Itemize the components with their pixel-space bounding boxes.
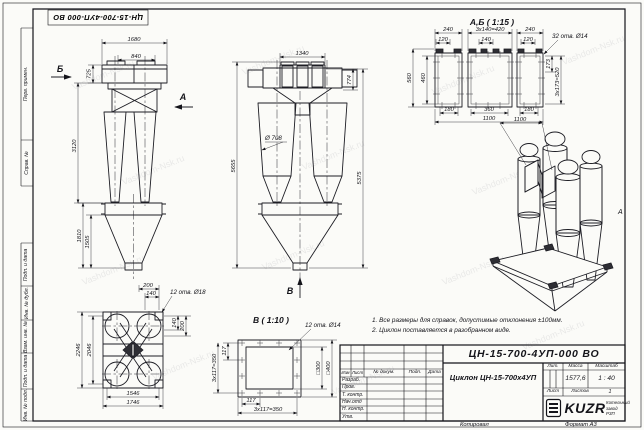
col-podp: Подп.: [404, 369, 426, 377]
company-logo-text: KUZR: [563, 397, 607, 418]
titleblock-designation: ЦН-15-700-4УП-000 ВО: [443, 345, 625, 363]
dim-774: 774: [347, 75, 353, 85]
dim-117l: 117: [222, 346, 228, 356]
margin-label-inv-podl: Инв. № подл.: [20, 389, 33, 421]
titleblock-product-title: Циклон ЦН-15-700х4УП: [444, 366, 542, 390]
dim-1680: 1680: [128, 37, 142, 43]
margin-label-perv-primen: Перв. примен.: [20, 28, 33, 140]
note-line-2: 2. Циклон поставляется в разобранном вид…: [372, 327, 622, 334]
dim-200t: 200: [142, 283, 153, 289]
mass-label: Масса: [563, 363, 588, 370]
view-side: 1680 840 725 3120 1810 1505 Б А: [45, 36, 230, 301]
row-razrab: Разраб.: [342, 378, 360, 384]
row-nachotd: Нач.отд: [342, 400, 362, 406]
format-label: Формат А3: [565, 422, 597, 429]
notes: 1. Все размеры для справок, допустимые о…: [372, 317, 622, 335]
dim-1810: 1810: [77, 229, 83, 243]
view-arrow-a: А: [179, 92, 187, 102]
row-prov: Пров.: [342, 385, 355, 391]
dim-140t: 140: [146, 291, 156, 297]
scale-value: 1 : 40: [588, 370, 625, 388]
lit-label: Лит.: [543, 363, 563, 370]
margin-label-podp-data-1: Подп. и дата: [20, 243, 33, 286]
dim-360: 360: [484, 107, 494, 113]
sheets-label: Листов: [565, 388, 595, 396]
margin-label-sprav-no: Справ. №: [20, 140, 33, 186]
dim-1546: 1546: [127, 391, 141, 397]
row-tkontr: Т. контр.: [342, 393, 364, 399]
dim-1505: 1505: [85, 235, 91, 249]
note-line-1: 1. Все размеры для справок, допустимые о…: [372, 317, 622, 324]
dim-350b: 3х117=350: [254, 407, 283, 413]
detail-v: В ( 1:10 ) 12 отв. Ø14 □300 □400 117 3х1…: [205, 300, 360, 425]
copied-label: Копировал: [460, 422, 489, 429]
dim-240r: 240: [524, 27, 535, 33]
zone-marker-a: А: [618, 209, 623, 217]
company-logo-icon: [546, 399, 561, 417]
dim-1340: 1340: [296, 51, 310, 57]
dim-180r: 180: [524, 107, 534, 113]
dim-840: 840: [131, 54, 141, 60]
view-front: 1340 774 5655 5375 Ø 708 В: [225, 36, 410, 311]
dim-5655: 5655: [231, 159, 237, 173]
row-utv: Утв.: [342, 415, 353, 421]
dim-180l: 180: [444, 107, 454, 113]
dia-708-label: Ø 708: [264, 135, 282, 142]
sheet-label: Лист: [543, 388, 563, 396]
dim-2246: 2246: [76, 343, 82, 358]
dim-1100-iso: 1100: [514, 117, 527, 123]
view-isometric: 1100: [480, 115, 635, 315]
designation-stamp: ЦН-15-700-4УП-000 ВО: [48, 10, 148, 25]
dim-120l: 120: [438, 37, 448, 43]
dim-1746: 1746: [127, 400, 141, 406]
col-data: Дата: [426, 369, 443, 377]
margin-label-inv-dubl: Инв. № дубл.: [20, 286, 33, 320]
dim-420: 3х140=420: [476, 27, 506, 33]
margin-label-podp-data-2: Подп. и дата: [20, 353, 33, 389]
scale-label: Масштаб: [588, 363, 625, 370]
dim-2046: 2046: [87, 343, 93, 358]
col-izm: Изм: [340, 369, 351, 377]
view-arrow-b: Б: [57, 64, 64, 74]
row-nkontr: Н. контр.: [342, 407, 365, 413]
sheets-value: 1: [600, 388, 620, 396]
dim-117b: 117: [246, 398, 256, 404]
dim-173: 173: [546, 58, 552, 68]
dim-300: □300: [316, 361, 322, 375]
view-arrow-v: В: [287, 286, 294, 296]
detail-v-title: В ( 1:10 ): [253, 315, 289, 325]
company-name: Котельный завод РЗП: [606, 400, 625, 418]
mass-value: 1577,6: [563, 370, 588, 388]
view-plan: 200 140 12 отв. Ø18 140 200 2246 2046 15…: [60, 280, 225, 425]
dim-560: 560: [407, 72, 413, 82]
holes-label-ab: 32 отв. Ø14: [552, 33, 588, 40]
company-name-line2: завод РЗП: [606, 406, 625, 417]
dim-5375: 5375: [357, 171, 363, 185]
dim-140: 140: [481, 37, 491, 43]
dim-725: 725: [87, 68, 93, 78]
col-list: Лист: [351, 369, 364, 377]
dim-520: 3х173=520: [555, 67, 561, 97]
dim-3120: 3120: [72, 139, 78, 153]
dim-240l: 240: [442, 27, 453, 33]
holes-label-v: 12 отв. Ø14: [305, 322, 341, 329]
drawing-sheet: Vashdom-Nsk.ru Vashdom-Nsk.ru Vashdom-Ns…: [0, 0, 644, 430]
detail-ab-title: А,Б ( 1:15 ): [469, 17, 514, 27]
holes-label-plan: 12 отв. Ø18: [170, 289, 206, 296]
dim-350l: 3х117=350: [212, 353, 218, 382]
col-doc: № докум.: [364, 369, 404, 377]
dim-140r: 140: [172, 317, 178, 327]
dim-400: □400: [326, 361, 332, 375]
dim-460: 460: [421, 72, 427, 82]
company-name-line1: Котельный: [606, 400, 625, 406]
dim-200r: 200: [180, 320, 186, 331]
margin-label-vzam-inv: Взам. инв. №: [20, 320, 33, 353]
dim-120r: 120: [523, 37, 533, 43]
